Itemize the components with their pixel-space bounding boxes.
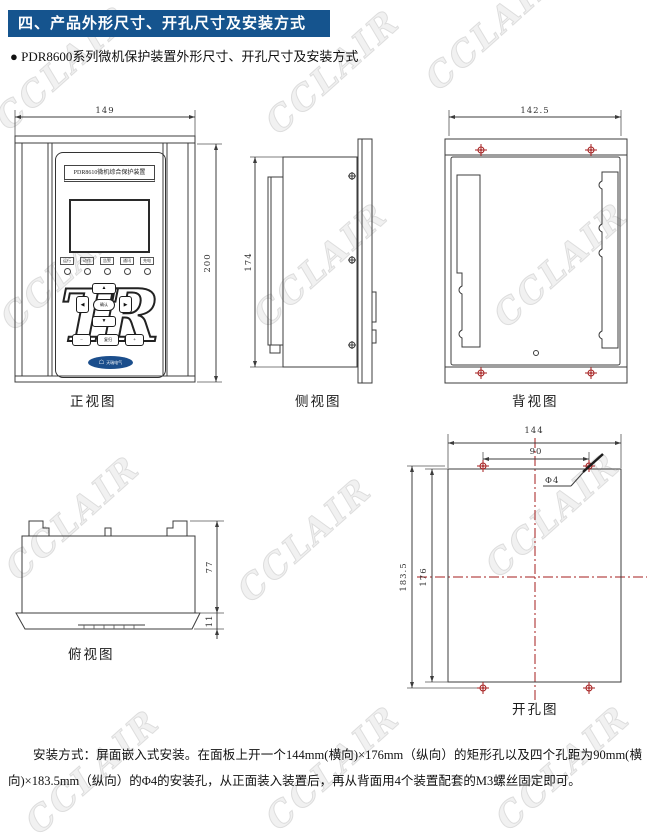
- key-up: ▲: [92, 283, 116, 294]
- watermark: CCLAIR: [230, 469, 381, 610]
- mount-hole-marker: [585, 367, 597, 379]
- side-view-drawing: 174: [245, 100, 385, 410]
- connector-cutout-right: [599, 172, 618, 348]
- device-front-panel: PDR8610微机综合保护装置 运行 动作 告警 通讯 充电 TR ▲ ◀ ▶ …: [55, 152, 166, 378]
- screw-icon: [348, 172, 356, 180]
- document-page: CCLAIR CCLAIR CCLAIR CCLAIR CCLAIR CCLAI…: [0, 0, 650, 838]
- brand-emblem-icon: ☖: [99, 360, 104, 366]
- indicator-label: 充电: [140, 257, 154, 265]
- hole-diagram-label: 开孔图: [512, 698, 559, 718]
- device-lcd-screen: [69, 199, 150, 253]
- top-view-drawing: 77 11: [0, 495, 240, 660]
- side-view-label: 侧视图: [295, 390, 342, 410]
- back-view-label: 背视图: [512, 390, 559, 410]
- mount-hole-marker: [475, 144, 487, 156]
- section-header: 四、产品外形尺寸、开孔尺寸及安装方式: [8, 10, 330, 37]
- indicator-label: 运行: [60, 257, 74, 265]
- dim-hole-width: 144: [524, 426, 543, 436]
- dim-front-width: 149: [95, 106, 114, 116]
- screw-icon: [348, 341, 356, 349]
- brand-text: 天瑞电气: [106, 361, 122, 365]
- dim-hole-spacing: 90: [530, 447, 543, 457]
- key-right: ▶: [119, 296, 132, 313]
- hole-diameter-callout: Φ4: [545, 476, 559, 486]
- brand-logo: ☖ 天瑞电气: [88, 356, 133, 369]
- key-plus: +: [125, 334, 144, 346]
- key-minus: −: [72, 334, 91, 346]
- indicator-label: 告警: [100, 257, 114, 265]
- key-reset: 复归: [97, 334, 119, 346]
- dim-back-width: 142.5: [520, 106, 549, 116]
- device-title: PDR8610微机综合保护装置: [64, 165, 155, 182]
- key-down: ▼: [92, 316, 116, 327]
- dim-hole-height-outer: 183.5: [399, 562, 409, 591]
- watermark: CCLAIR: [418, 0, 569, 99]
- mount-hole-marker: [475, 367, 487, 379]
- back-view-drawing: 142.5: [430, 100, 650, 410]
- key-confirm: 确认: [93, 299, 115, 311]
- mount-hole-marker: [583, 682, 595, 694]
- indicator-label: 动作: [80, 257, 94, 265]
- key-left: ◀: [76, 296, 89, 313]
- mount-hole-marker: [585, 144, 597, 156]
- top-view-label: 俯视图: [68, 643, 115, 663]
- mount-hole-marker: [477, 460, 489, 472]
- front-view-label: 正视图: [70, 390, 117, 410]
- ground-hole: [534, 351, 539, 356]
- hole-diagram-drawing: 144 90 183.5 176 Φ4: [395, 420, 650, 720]
- dim-top-panel: 11: [205, 615, 215, 628]
- installation-note: 安装方式：屏面嵌入式安装。在面板上开一个144mm(横向)×176mm（纵向）的…: [8, 742, 642, 794]
- dim-side-height: 174: [244, 252, 254, 271]
- intro-bullet: ● PDR8600系列微机保护装置外形尺寸、开孔尺寸及安装方式: [10, 46, 358, 65]
- indicator-label: 通讯: [120, 257, 134, 265]
- dim-top-depth: 77: [205, 561, 215, 574]
- dim-hole-height-inner: 176: [419, 567, 429, 586]
- dim-front-height: 200: [203, 253, 213, 272]
- screw-icon: [348, 256, 356, 264]
- mount-hole-marker: [477, 682, 489, 694]
- connector-cutout-left: [457, 175, 480, 347]
